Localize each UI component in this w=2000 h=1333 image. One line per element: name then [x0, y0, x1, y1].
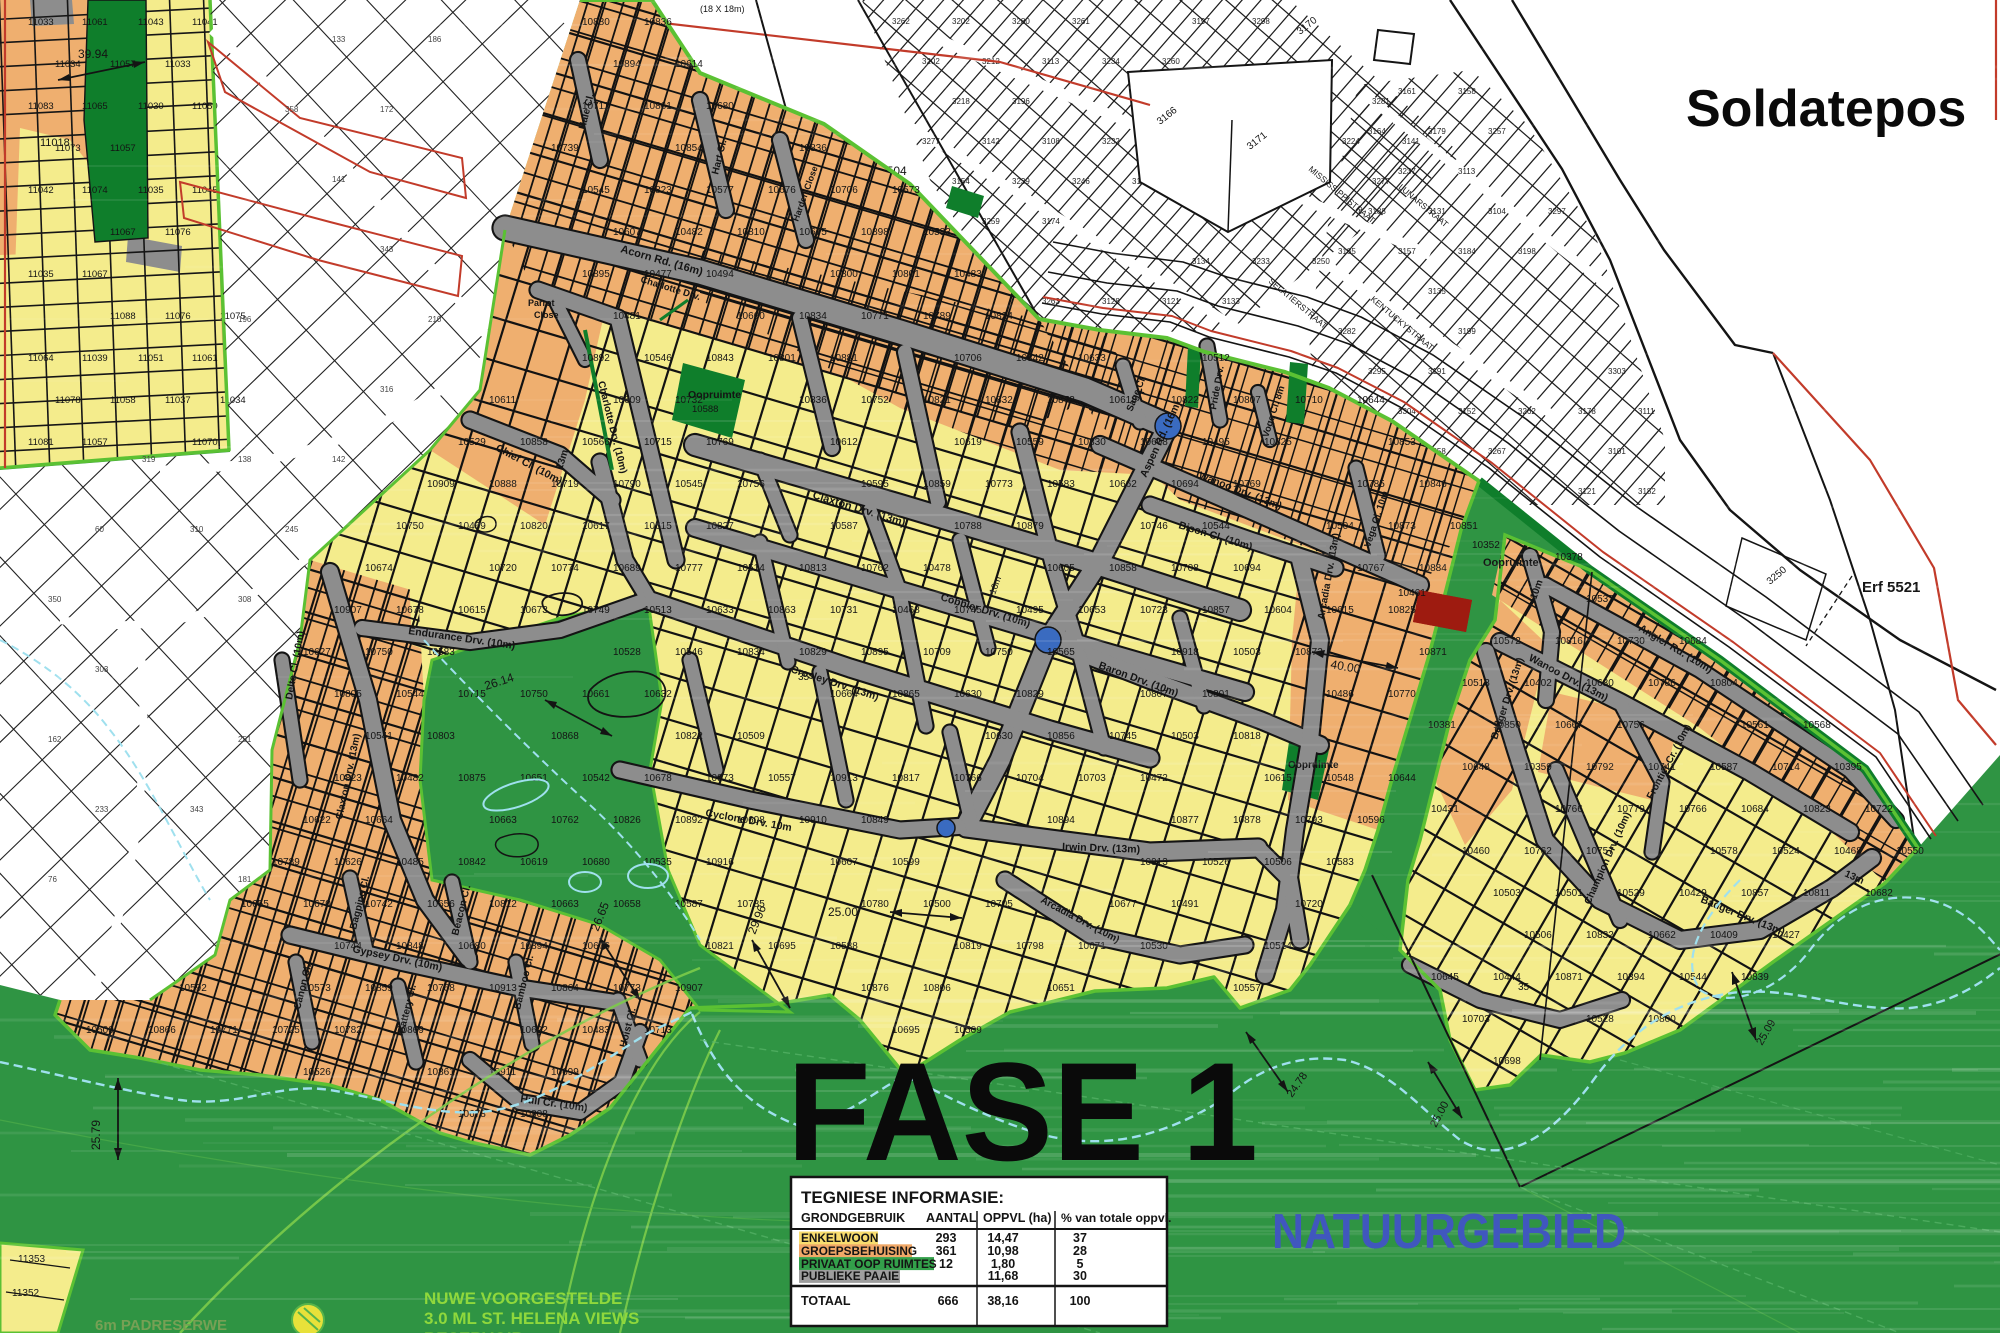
- svg-text:10485: 10485: [396, 857, 424, 868]
- svg-text:10461: 10461: [1398, 588, 1426, 599]
- svg-text:10849: 10849: [861, 815, 889, 826]
- svg-text:10836: 10836: [799, 395, 827, 406]
- svg-text:10491: 10491: [1171, 899, 1199, 910]
- svg-text:10573: 10573: [892, 185, 920, 196]
- svg-text:10513: 10513: [1462, 678, 1490, 689]
- svg-text:10544: 10544: [396, 689, 424, 700]
- svg-text:10873: 10873: [706, 773, 734, 784]
- svg-text:11064: 11064: [28, 353, 54, 364]
- svg-text:10830: 10830: [1078, 437, 1106, 448]
- svg-text:10670: 10670: [303, 899, 331, 910]
- svg-text:10546: 10546: [644, 353, 672, 364]
- svg-text:10714: 10714: [1772, 762, 1800, 773]
- svg-text:3197: 3197: [1192, 17, 1210, 26]
- svg-text:10583: 10583: [1326, 857, 1354, 868]
- svg-text:10402: 10402: [1524, 678, 1552, 689]
- svg-text:10503: 10503: [1493, 888, 1521, 899]
- svg-text:10895: 10895: [582, 269, 610, 280]
- svg-text:11058: 11058: [110, 395, 136, 406]
- svg-text:14,47: 14,47: [987, 1231, 1018, 1245]
- svg-text:10811: 10811: [1803, 888, 1831, 899]
- svg-text:10873: 10873: [1047, 395, 1075, 406]
- svg-text:11061: 11061: [82, 17, 108, 28]
- svg-text:316: 316: [380, 385, 394, 394]
- svg-text:10750: 10750: [365, 647, 393, 658]
- svg-text:10495: 10495: [1202, 437, 1230, 448]
- svg-text:10607: 10607: [613, 227, 641, 238]
- svg-text:10630: 10630: [985, 731, 1013, 742]
- svg-text:10626: 10626: [334, 857, 362, 868]
- svg-text:11041: 11041: [192, 17, 218, 28]
- svg-text:10526: 10526: [1202, 857, 1230, 868]
- svg-text:3164: 3164: [1368, 127, 1386, 136]
- svg-text:10662: 10662: [1648, 930, 1676, 941]
- svg-text:10786: 10786: [1648, 678, 1676, 689]
- svg-text:11078: 11078: [55, 395, 81, 406]
- svg-text:10352: 10352: [1472, 540, 1500, 551]
- svg-text:35: 35: [798, 672, 810, 683]
- svg-text:10703: 10703: [1078, 773, 1106, 784]
- svg-text:343: 343: [380, 245, 394, 254]
- svg-text:10857: 10857: [1202, 605, 1230, 616]
- svg-text:11,68: 11,68: [988, 1269, 1019, 1283]
- svg-text:10501: 10501: [1555, 888, 1583, 899]
- svg-text:10826: 10826: [613, 815, 641, 826]
- svg-text:10566: 10566: [582, 437, 610, 448]
- svg-text:ENKELWOON: ENKELWOON: [801, 1231, 878, 1245]
- svg-text:10898: 10898: [861, 227, 889, 238]
- svg-text:10394: 10394: [1617, 972, 1645, 983]
- svg-text:10557: 10557: [768, 773, 796, 784]
- svg-text:10817: 10817: [892, 773, 920, 784]
- svg-text:10568: 10568: [1803, 720, 1831, 731]
- svg-text:308: 308: [238, 595, 252, 604]
- svg-text:10770: 10770: [1388, 689, 1416, 700]
- svg-text:10528: 10528: [613, 647, 641, 658]
- svg-text:186: 186: [428, 35, 442, 44]
- svg-text:3121: 3121: [1578, 487, 1596, 496]
- svg-text:37: 37: [1073, 1231, 1087, 1245]
- svg-text:10746: 10746: [1140, 521, 1168, 532]
- svg-text:10843: 10843: [706, 353, 734, 364]
- svg-text:11037: 11037: [165, 395, 191, 406]
- svg-text:10548: 10548: [1326, 773, 1354, 784]
- svg-text:3108: 3108: [1042, 137, 1060, 146]
- svg-text:12: 12: [939, 1257, 953, 1271]
- svg-text:10839: 10839: [1741, 972, 1769, 983]
- svg-text:10684: 10684: [1741, 804, 1769, 815]
- svg-text:10762: 10762: [551, 815, 579, 826]
- svg-text:10851: 10851: [1450, 521, 1478, 532]
- svg-text:11035: 11035: [28, 269, 54, 280]
- svg-text:3277: 3277: [1372, 177, 1390, 186]
- svg-text:10622: 10622: [520, 1025, 548, 1036]
- svg-text:TOTAAL: TOTAAL: [801, 1294, 851, 1308]
- svg-text:3218: 3218: [952, 97, 970, 106]
- svg-text:10789: 10789: [923, 311, 951, 322]
- svg-text:10605: 10605: [1047, 563, 1075, 574]
- svg-text:10509: 10509: [737, 731, 765, 742]
- svg-text:FASE 1: FASE 1: [787, 1033, 1258, 1190]
- svg-text:10810: 10810: [737, 227, 765, 238]
- svg-text:10715: 10715: [644, 437, 672, 448]
- svg-text:10645: 10645: [1431, 972, 1459, 983]
- svg-text:10875: 10875: [458, 773, 486, 784]
- svg-text:10663: 10663: [489, 815, 517, 826]
- svg-text:10689: 10689: [613, 563, 641, 574]
- svg-text:39.94: 39.94: [78, 47, 108, 61]
- svg-text:10619: 10619: [954, 437, 982, 448]
- svg-text:10653: 10653: [1078, 605, 1106, 616]
- svg-text:11034: 11034: [55, 59, 81, 70]
- svg-text:3104: 3104: [1488, 207, 1506, 216]
- svg-text:25.00: 25.00: [828, 905, 858, 919]
- svg-text:3281: 3281: [1372, 97, 1390, 106]
- svg-text:3237: 3237: [1398, 167, 1416, 176]
- svg-text:38,16: 38,16: [987, 1294, 1018, 1308]
- svg-text:10895: 10895: [861, 647, 889, 658]
- svg-text:10913: 10913: [1140, 857, 1168, 868]
- svg-text:10677: 10677: [1109, 899, 1137, 910]
- svg-text:11073: 11073: [55, 143, 81, 154]
- svg-text:11051: 11051: [138, 353, 164, 364]
- svg-text:10827: 10827: [706, 521, 734, 532]
- svg-text:10500: 10500: [923, 899, 951, 910]
- svg-text:3128: 3128: [1102, 297, 1120, 306]
- svg-text:3250: 3250: [1312, 257, 1330, 266]
- svg-text:10812: 10812: [489, 899, 517, 910]
- svg-text:3267: 3267: [1488, 447, 1506, 456]
- svg-text:10678: 10678: [396, 605, 424, 616]
- svg-text:319: 319: [142, 455, 156, 464]
- svg-text:6m PADRESERWE: 6m PADRESERWE: [95, 1317, 227, 1333]
- svg-text:10587: 10587: [830, 521, 858, 532]
- svg-text:10723: 10723: [1140, 605, 1168, 616]
- svg-text:162: 162: [48, 735, 62, 744]
- svg-text:10788: 10788: [954, 521, 982, 532]
- svg-text:11039: 11039: [82, 353, 108, 364]
- svg-text:10818: 10818: [1233, 731, 1261, 742]
- svg-text:10846: 10846: [1419, 479, 1447, 490]
- svg-text:10881: 10881: [830, 353, 858, 364]
- svg-text:Oopruimte: Oopruimte: [688, 389, 741, 401]
- svg-text:10750: 10750: [520, 689, 548, 700]
- svg-text:10644: 10644: [1357, 395, 1385, 406]
- svg-text:10494: 10494: [706, 269, 734, 280]
- svg-text:10842: 10842: [1016, 353, 1044, 364]
- svg-text:141: 141: [332, 175, 346, 184]
- svg-text:10533: 10533: [923, 227, 951, 238]
- svg-text:10680: 10680: [582, 857, 610, 868]
- svg-text:11043: 11043: [138, 17, 164, 28]
- svg-text:10546: 10546: [675, 647, 703, 658]
- svg-text:10633: 10633: [706, 605, 734, 616]
- svg-text:10651: 10651: [1047, 983, 1075, 994]
- svg-text:76: 76: [48, 875, 57, 884]
- svg-text:10918: 10918: [1171, 647, 1199, 658]
- svg-text:10703: 10703: [1462, 1014, 1490, 1025]
- svg-text:10709: 10709: [923, 647, 951, 658]
- svg-text:10615: 10615: [1326, 605, 1354, 616]
- svg-text:10769: 10769: [706, 437, 734, 448]
- svg-text:10627: 10627: [303, 647, 331, 658]
- svg-text:10773: 10773: [985, 479, 1013, 490]
- svg-text:30: 30: [1073, 1269, 1087, 1283]
- svg-text:10660: 10660: [737, 311, 765, 322]
- svg-text:11035: 11035: [138, 185, 164, 196]
- svg-text:GROEPSBEHUISING: GROEPSBEHUISING: [801, 1244, 917, 1258]
- svg-text:10861: 10861: [644, 101, 672, 112]
- svg-text:10664: 10664: [365, 815, 393, 826]
- svg-text:10854: 10854: [675, 143, 703, 154]
- svg-text:3280: 3280: [1012, 17, 1030, 26]
- svg-text:10864: 10864: [551, 983, 579, 994]
- svg-text:10873: 10873: [1388, 521, 1416, 532]
- svg-text:10529: 10529: [458, 437, 486, 448]
- svg-text:10663: 10663: [551, 899, 579, 910]
- svg-text:10409: 10409: [1710, 930, 1738, 941]
- svg-text:10829: 10829: [799, 647, 827, 658]
- svg-text:10832: 10832: [985, 395, 1013, 406]
- svg-text:NUWE VOORGESTELDE: NUWE VOORGESTELDE: [424, 1289, 622, 1308]
- svg-text:10834: 10834: [799, 311, 827, 322]
- svg-text:11074: 11074: [82, 185, 108, 196]
- svg-text:11057: 11057: [82, 437, 108, 448]
- svg-text:10583: 10583: [1047, 479, 1075, 490]
- svg-text:10541: 10541: [365, 731, 393, 742]
- svg-text:3295: 3295: [1368, 367, 1386, 376]
- svg-text:10674: 10674: [365, 563, 393, 574]
- svg-text:10503: 10503: [1233, 647, 1261, 658]
- svg-text:10863: 10863: [768, 605, 796, 616]
- svg-text:10483: 10483: [954, 269, 982, 280]
- svg-text:10444: 10444: [1493, 972, 1521, 983]
- svg-text:10503: 10503: [1171, 731, 1199, 742]
- svg-text:10622: 10622: [303, 815, 331, 826]
- svg-text:10619: 10619: [520, 857, 548, 868]
- svg-text:11083: 11083: [28, 101, 54, 112]
- svg-text:10868: 10868: [551, 731, 579, 742]
- svg-text:10894: 10894: [1047, 815, 1075, 826]
- svg-text:11033: 11033: [28, 17, 54, 28]
- svg-text:10698: 10698: [1493, 1056, 1521, 1067]
- svg-text:10804: 10804: [1710, 678, 1738, 689]
- svg-text:10842: 10842: [458, 857, 486, 868]
- svg-text:3282: 3282: [1338, 327, 1356, 336]
- svg-text:10742: 10742: [365, 899, 393, 910]
- svg-text:3179: 3179: [1428, 127, 1446, 136]
- svg-text:10468: 10468: [892, 605, 920, 616]
- svg-text:10615: 10615: [644, 521, 672, 532]
- svg-text:3.0 ML ST. HELENA VIEWS: 3.0 ML ST. HELENA VIEWS: [424, 1309, 639, 1328]
- svg-text:10822: 10822: [675, 731, 703, 742]
- svg-text:133: 133: [332, 35, 346, 44]
- svg-text:AANTAL: AANTAL: [926, 1211, 977, 1225]
- svg-text:10805: 10805: [334, 689, 362, 700]
- svg-text:10675: 10675: [799, 227, 827, 238]
- svg-text:10858: 10858: [520, 437, 548, 448]
- svg-text:10909: 10909: [427, 479, 455, 490]
- svg-text:GRONDGEBRUIK: GRONDGEBRUIK: [801, 1211, 905, 1225]
- svg-text:10823: 10823: [644, 185, 672, 196]
- svg-text:303: 303: [95, 665, 109, 674]
- svg-text:3182: 3182: [1638, 487, 1656, 496]
- svg-text:3135: 3135: [1428, 287, 1446, 296]
- svg-text:11067: 11067: [82, 269, 108, 280]
- svg-text:10722: 10722: [1865, 804, 1893, 815]
- svg-text:10513: 10513: [644, 605, 672, 616]
- svg-text:3191: 3191: [1428, 367, 1446, 376]
- svg-text:10684: 10684: [1679, 636, 1707, 647]
- svg-text:Parrot: Parrot: [528, 298, 555, 308]
- svg-text:10378: 10378: [1555, 552, 1583, 563]
- svg-text:10859: 10859: [365, 983, 393, 994]
- svg-text:10381: 10381: [1428, 720, 1456, 731]
- svg-text:10557: 10557: [1233, 983, 1261, 994]
- svg-text:10880: 10880: [582, 17, 610, 28]
- svg-text:10766: 10766: [954, 773, 982, 784]
- svg-text:10662: 10662: [1109, 479, 1137, 490]
- svg-text:10587: 10587: [1710, 762, 1738, 773]
- svg-text:10500: 10500: [86, 1025, 114, 1036]
- svg-text:3158: 3158: [1458, 87, 1476, 96]
- svg-text:10857: 10857: [1741, 888, 1769, 899]
- svg-text:10615: 10615: [1264, 773, 1292, 784]
- svg-text:10790: 10790: [613, 479, 641, 490]
- svg-text:10756: 10756: [1617, 720, 1645, 731]
- svg-text:10750: 10750: [396, 521, 424, 532]
- svg-text:10771: 10771: [861, 311, 889, 322]
- svg-text:3246: 3246: [1072, 177, 1090, 186]
- svg-text:TEGNIESE INFORMASIE:: TEGNIESE INFORMASIE:: [801, 1188, 1004, 1207]
- svg-text:10514: 10514: [737, 563, 765, 574]
- svg-text:10777: 10777: [675, 563, 703, 574]
- svg-text:10768: 10768: [427, 983, 455, 994]
- svg-text:10395: 10395: [1834, 762, 1862, 773]
- svg-text:10706: 10706: [830, 185, 858, 196]
- svg-text:11081: 11081: [28, 437, 54, 448]
- svg-text:3196: 3196: [1012, 97, 1030, 106]
- svg-text:10472: 10472: [1140, 773, 1168, 784]
- svg-text:10807: 10807: [1233, 395, 1261, 406]
- svg-text:10871: 10871: [1419, 647, 1447, 658]
- svg-text:10888: 10888: [489, 479, 517, 490]
- svg-text:10749: 10749: [582, 605, 610, 616]
- svg-text:10694: 10694: [1233, 563, 1261, 574]
- svg-text:10704: 10704: [1016, 773, 1044, 784]
- svg-text:666: 666: [938, 1294, 959, 1308]
- svg-text:10856: 10856: [1047, 731, 1075, 742]
- svg-text:10706: 10706: [954, 353, 982, 364]
- svg-text:293: 293: [936, 1231, 957, 1245]
- svg-text:10612: 10612: [830, 437, 858, 448]
- svg-text:10604: 10604: [1264, 605, 1292, 616]
- svg-text:10633: 10633: [1078, 353, 1106, 364]
- svg-text:10785: 10785: [1357, 479, 1385, 490]
- svg-text:10617: 10617: [582, 521, 610, 532]
- svg-text:10506: 10506: [1524, 930, 1552, 941]
- svg-text:11057: 11057: [110, 143, 136, 154]
- svg-text:11076: 11076: [165, 227, 191, 238]
- svg-text:10478: 10478: [923, 563, 951, 574]
- svg-text:10913: 10913: [489, 983, 517, 994]
- svg-text:11033: 11033: [165, 59, 191, 70]
- svg-text:3257: 3257: [1488, 127, 1506, 136]
- svg-text:3101: 3101: [1608, 447, 1626, 456]
- svg-text:OPPVL (ha): OPPVL (ha): [983, 1211, 1052, 1225]
- svg-text:10661: 10661: [582, 689, 610, 700]
- svg-text:10800: 10800: [830, 269, 858, 280]
- svg-text:3134: 3134: [1192, 257, 1210, 266]
- svg-text:10821: 10821: [923, 395, 951, 406]
- svg-text:10824: 10824: [985, 311, 1013, 322]
- svg-text:3141: 3141: [1402, 137, 1420, 146]
- svg-text:10752: 10752: [861, 395, 889, 406]
- svg-text:10859: 10859: [923, 479, 951, 490]
- svg-text:3121: 3121: [1162, 297, 1180, 306]
- svg-text:11061: 11061: [192, 353, 218, 364]
- svg-text:10877: 10877: [1171, 815, 1199, 826]
- svg-text:10892: 10892: [582, 353, 610, 364]
- svg-text:11352: 11352: [12, 1288, 40, 1299]
- svg-text:10482: 10482: [396, 773, 424, 784]
- svg-text:11042: 11042: [28, 185, 54, 196]
- svg-text:361: 361: [936, 1244, 957, 1258]
- svg-text:142: 142: [332, 455, 346, 464]
- svg-text:RESERVOIR: RESERVOIR: [424, 1329, 524, 1333]
- svg-text:10750: 10750: [985, 647, 1013, 658]
- svg-text:10793: 10793: [1295, 815, 1323, 826]
- svg-text:10588: 10588: [692, 404, 718, 415]
- svg-text:10876: 10876: [861, 983, 889, 994]
- svg-text:10913: 10913: [830, 773, 858, 784]
- svg-text:10592: 10592: [179, 983, 207, 994]
- svg-text:10676: 10676: [768, 185, 796, 196]
- svg-text:10879: 10879: [1016, 521, 1044, 532]
- svg-text:3224: 3224: [1342, 137, 1360, 146]
- svg-text:10808: 10808: [520, 1109, 548, 1120]
- svg-text:10774: 10774: [551, 563, 579, 574]
- svg-text:10559: 10559: [1016, 437, 1044, 448]
- svg-text:10680: 10680: [706, 101, 734, 112]
- svg-text:11088: 11088: [110, 311, 136, 322]
- svg-text:10658: 10658: [613, 899, 641, 910]
- svg-text:3303: 3303: [1608, 367, 1626, 376]
- svg-text:Oopruimte: Oopruimte: [1483, 557, 1539, 569]
- svg-text:% van totale oppvl.: % van totale oppvl.: [1061, 1211, 1171, 1225]
- svg-text:10813: 10813: [799, 563, 827, 574]
- svg-text:PUBLIEKE PAAIE: PUBLIEKE PAAIE: [801, 1269, 899, 1283]
- svg-text:10739: 10739: [551, 143, 579, 154]
- svg-text:10481: 10481: [613, 311, 641, 322]
- svg-text:10853: 10853: [1388, 437, 1416, 448]
- svg-text:10529: 10529: [1617, 888, 1645, 899]
- svg-text:35: 35: [1518, 982, 1530, 993]
- svg-text:10615: 10615: [458, 605, 486, 616]
- svg-text:10766: 10766: [1679, 804, 1707, 815]
- svg-text:10561: 10561: [1741, 720, 1769, 731]
- svg-text:10504: 10504: [1326, 521, 1354, 532]
- svg-text:10720: 10720: [1295, 899, 1323, 910]
- svg-text:28: 28: [1073, 1244, 1087, 1258]
- svg-text:10803: 10803: [427, 731, 455, 742]
- svg-text:10832: 10832: [1586, 930, 1614, 941]
- svg-text:25.79: 25.79: [89, 1120, 103, 1150]
- svg-text:10836: 10836: [799, 143, 827, 154]
- svg-text:10762: 10762: [861, 563, 889, 574]
- svg-text:3202: 3202: [952, 17, 970, 26]
- svg-text:10878: 10878: [1233, 815, 1261, 826]
